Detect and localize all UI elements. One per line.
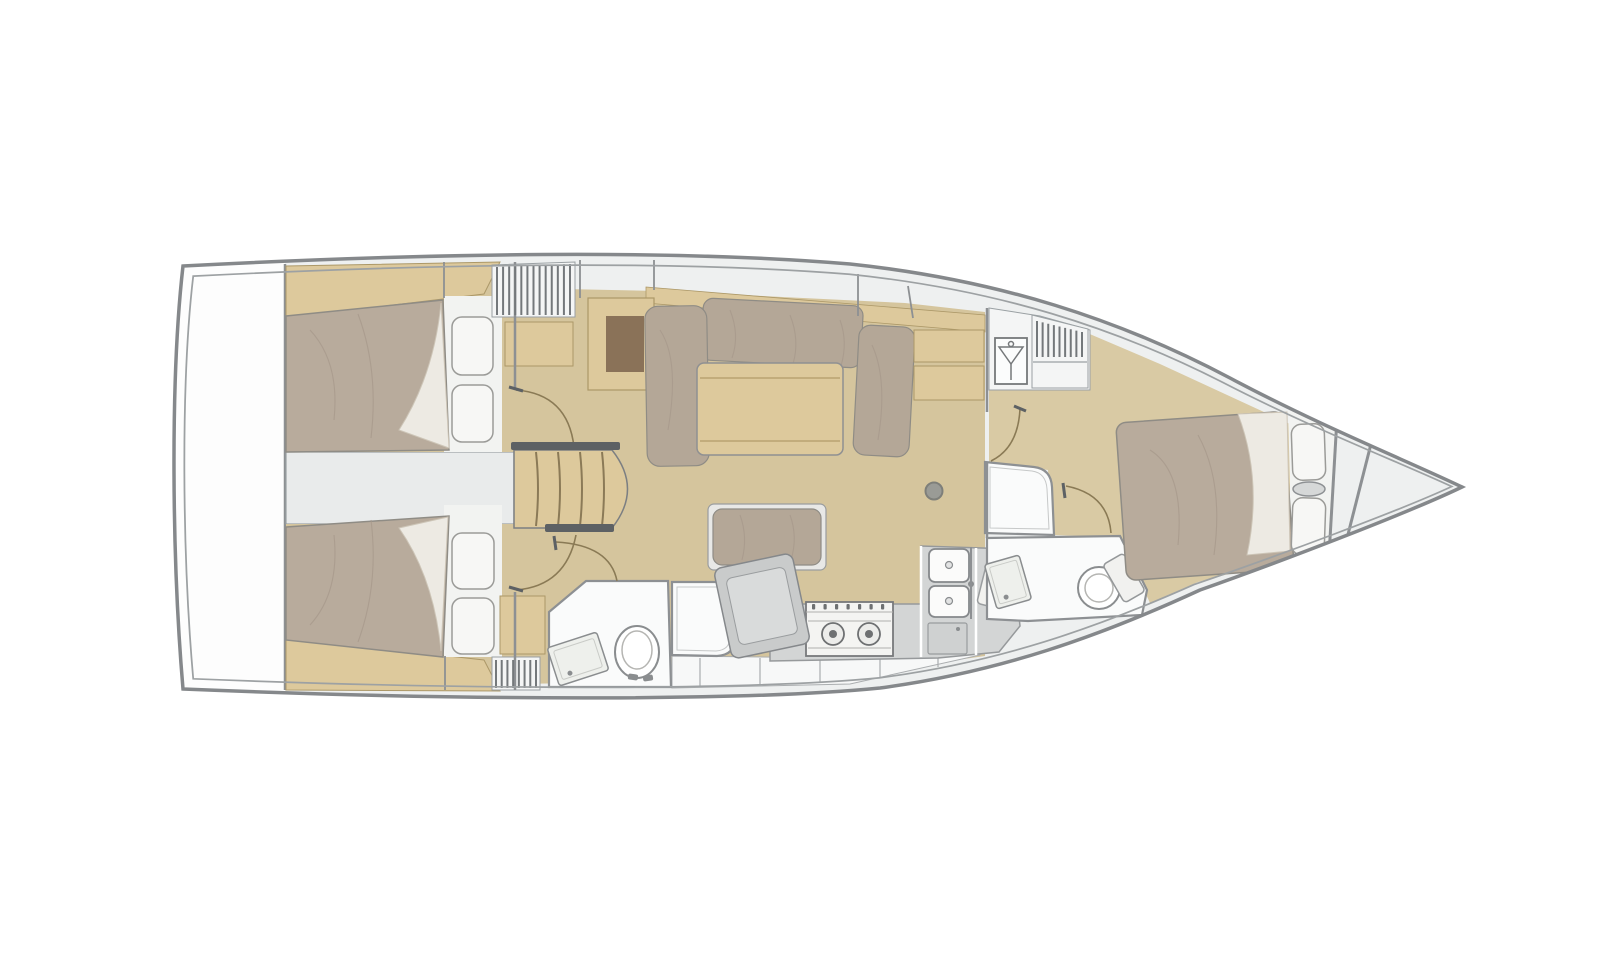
bed-pillow: [452, 317, 493, 375]
bed-pillow: [452, 385, 493, 442]
boat-floor-plan: [0, 0, 1600, 974]
top-loading-fridge: [928, 623, 967, 654]
companionway-stairs: [511, 442, 628, 532]
floor-plan-canvas: [0, 0, 1600, 974]
bed-pillow: [452, 533, 494, 589]
forward-shower: [985, 462, 1054, 535]
drain: [946, 598, 953, 605]
threshold-top: [511, 442, 620, 450]
drain: [946, 562, 953, 569]
settee-back-cushion: [700, 298, 863, 368]
stair-body: [514, 450, 628, 528]
locker-box: [500, 596, 545, 654]
door-leaf: [1063, 483, 1065, 498]
stove: [806, 602, 893, 656]
bed-pillow: [452, 598, 494, 654]
settee-arm-cushion: [853, 325, 916, 458]
bench-cushion: [713, 509, 821, 565]
forward-cabin: [1116, 410, 1337, 581]
shelf-cubby: [1293, 482, 1325, 496]
shower-stall: [985, 462, 1054, 535]
burner-center: [829, 630, 837, 638]
mast-post: [926, 483, 943, 500]
tv-inset: [606, 316, 644, 372]
fridge-latch: [956, 627, 960, 631]
bed-pillow: [1291, 423, 1326, 480]
sideboard: [914, 330, 984, 362]
door-leaf: [554, 536, 556, 550]
burner-center: [865, 630, 873, 638]
sideboard: [914, 366, 984, 400]
threshold-bottom: [545, 524, 614, 532]
